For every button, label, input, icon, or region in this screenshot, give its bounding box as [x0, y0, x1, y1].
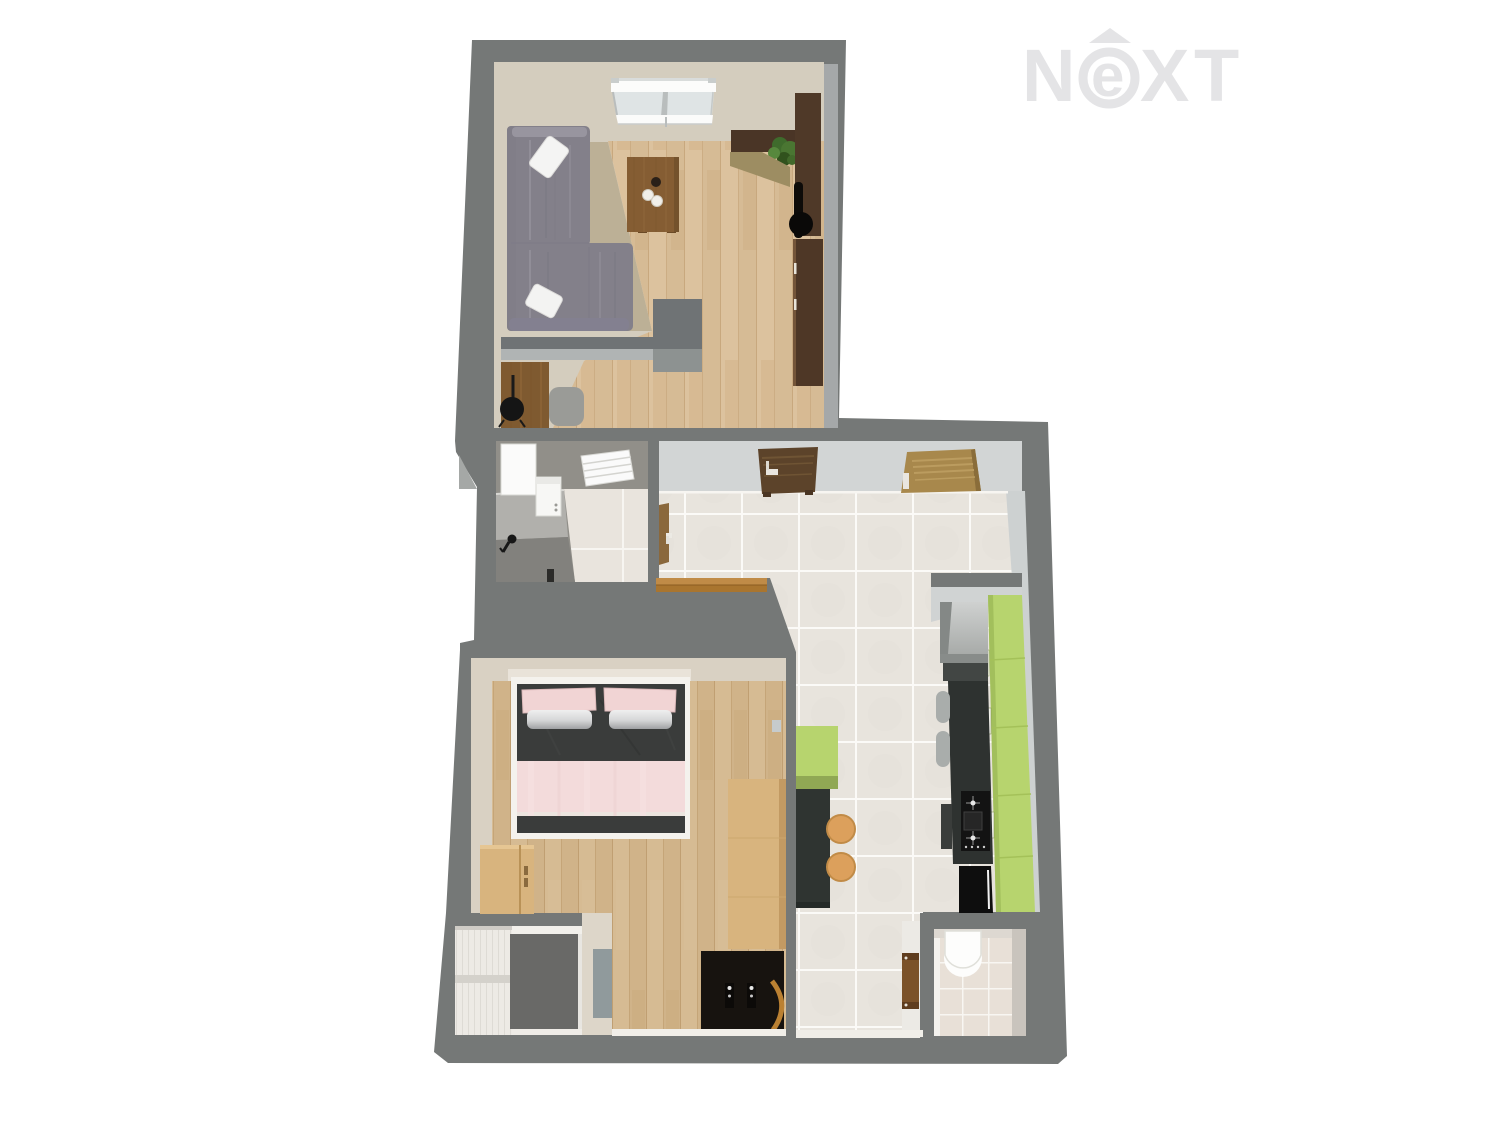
svg-text:X: X — [1140, 34, 1189, 117]
svg-text:N: N — [1022, 34, 1075, 117]
svg-text:e: e — [1091, 42, 1124, 109]
svg-text:T: T — [1194, 34, 1239, 117]
